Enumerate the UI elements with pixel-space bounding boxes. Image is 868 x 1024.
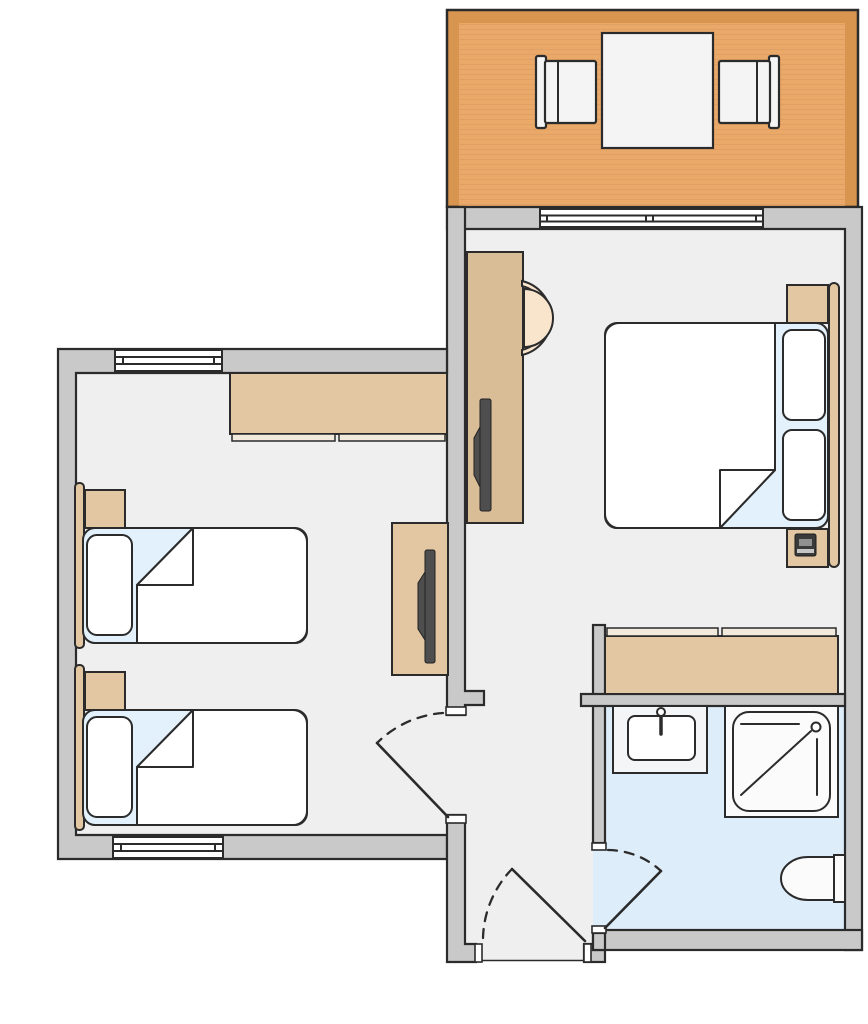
nightstand-1 xyxy=(85,490,125,528)
desk xyxy=(467,252,523,523)
entry-door-opening xyxy=(482,944,584,961)
twin-wardrobe xyxy=(230,373,447,434)
main-pillow-bottom xyxy=(783,430,825,520)
wall-bathroom-bottom xyxy=(593,930,862,950)
wall-bathroom-top xyxy=(581,694,845,706)
balcony-chair-left xyxy=(536,56,596,128)
floor-plan-canvas xyxy=(0,0,868,1024)
twin-door-opening xyxy=(447,715,465,815)
nightstand-2 xyxy=(85,672,125,710)
bath-door-frame-bottom xyxy=(592,926,606,933)
balcony-dining-table xyxy=(602,33,713,148)
bathroom-door-opening xyxy=(593,850,605,926)
main-wardrobe-rail-left xyxy=(607,628,718,636)
twin-window-top xyxy=(115,350,222,371)
sink xyxy=(613,706,707,773)
toilet-tank xyxy=(834,855,845,902)
floor-plan-drawing xyxy=(0,0,868,1024)
bath-door-frame-top xyxy=(592,843,606,850)
wall-bathroom-left xyxy=(593,625,605,843)
balcony xyxy=(447,10,858,207)
twin-wardrobe-rail-left xyxy=(232,434,335,441)
twin-window-bottom xyxy=(113,837,223,858)
double-bed xyxy=(605,323,828,528)
shower-drain xyxy=(812,723,821,732)
main-pillow-top xyxy=(783,330,825,420)
balcony-sliding-door xyxy=(540,209,763,227)
balcony-chair-right xyxy=(719,56,779,128)
toilet-bowl xyxy=(781,857,834,900)
twin-wardrobe-rail-right xyxy=(339,434,445,441)
shower xyxy=(725,706,838,817)
pillow-1 xyxy=(87,535,132,635)
main-nightstand-top xyxy=(787,285,828,323)
main-headboard xyxy=(829,283,839,567)
wall-bathroom-left-stub xyxy=(593,933,605,950)
telephone xyxy=(795,534,816,556)
main-wardrobe-rail-right xyxy=(722,628,836,636)
main-wardrobe xyxy=(605,636,838,694)
entry-door-frame-right xyxy=(584,944,591,962)
entry-door-frame-left xyxy=(475,944,482,962)
pillow-2 xyxy=(87,717,132,817)
twin-door-frame-top xyxy=(446,707,466,715)
toilet xyxy=(781,855,845,902)
